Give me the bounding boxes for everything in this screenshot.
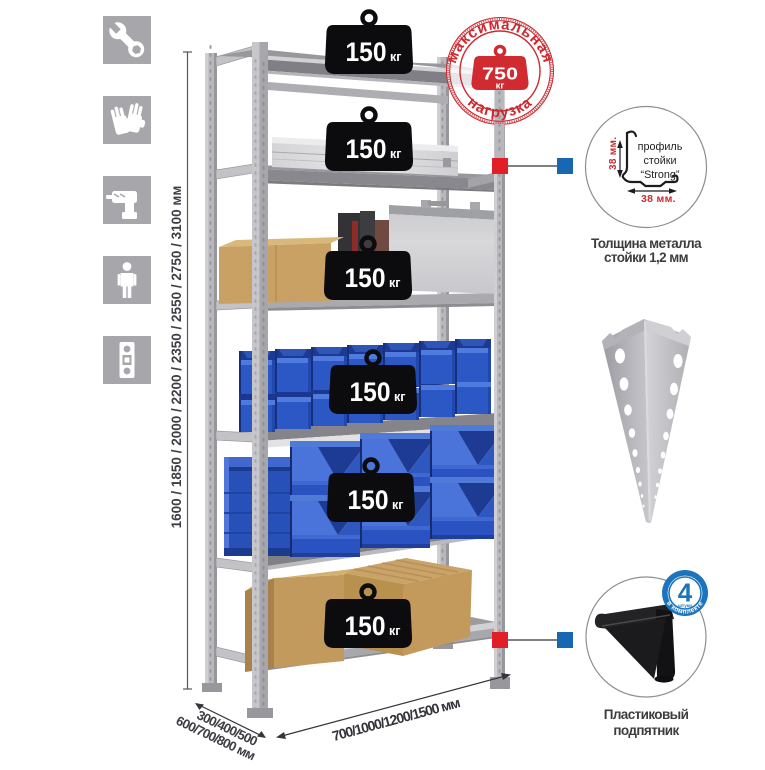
svg-text:кг: кг — [389, 624, 400, 638]
svg-text:стойки 1,2 мм: стойки 1,2 мм — [604, 250, 689, 265]
svg-text:150: 150 — [346, 37, 387, 67]
svg-text:подпятник: подпятник — [613, 723, 679, 738]
svg-text:штуки: штуки — [678, 603, 692, 608]
svg-text:профиль: профиль — [638, 141, 683, 153]
svg-text:кг: кг — [390, 50, 401, 64]
svg-text:150: 150 — [350, 377, 391, 407]
svg-text:кг: кг — [392, 498, 403, 512]
svg-text:1600 / 1850 / 2000 / 2200 / 23: 1600 / 1850 / 2000 / 2200 / 2350 / 2550 … — [169, 186, 184, 529]
svg-text:кг: кг — [389, 276, 400, 290]
svg-text:Пластиковый: Пластиковый — [604, 707, 689, 722]
svg-text:стойки: стойки — [643, 155, 676, 167]
svg-text:150: 150 — [345, 611, 386, 641]
svg-text:кг: кг — [496, 81, 505, 92]
svg-text:150: 150 — [346, 134, 387, 164]
svg-text:150: 150 — [348, 485, 389, 515]
svg-text:кг: кг — [394, 390, 405, 404]
svg-text:кг: кг — [390, 147, 401, 161]
svg-text:150: 150 — [345, 263, 386, 293]
svg-text:Толщина металла: Толщина металла — [591, 236, 702, 251]
svg-text:38 мм.: 38 мм. — [608, 137, 619, 170]
svg-text:38 мм.: 38 мм. — [641, 193, 676, 205]
svg-text:“Strong”: “Strong” — [640, 169, 679, 181]
